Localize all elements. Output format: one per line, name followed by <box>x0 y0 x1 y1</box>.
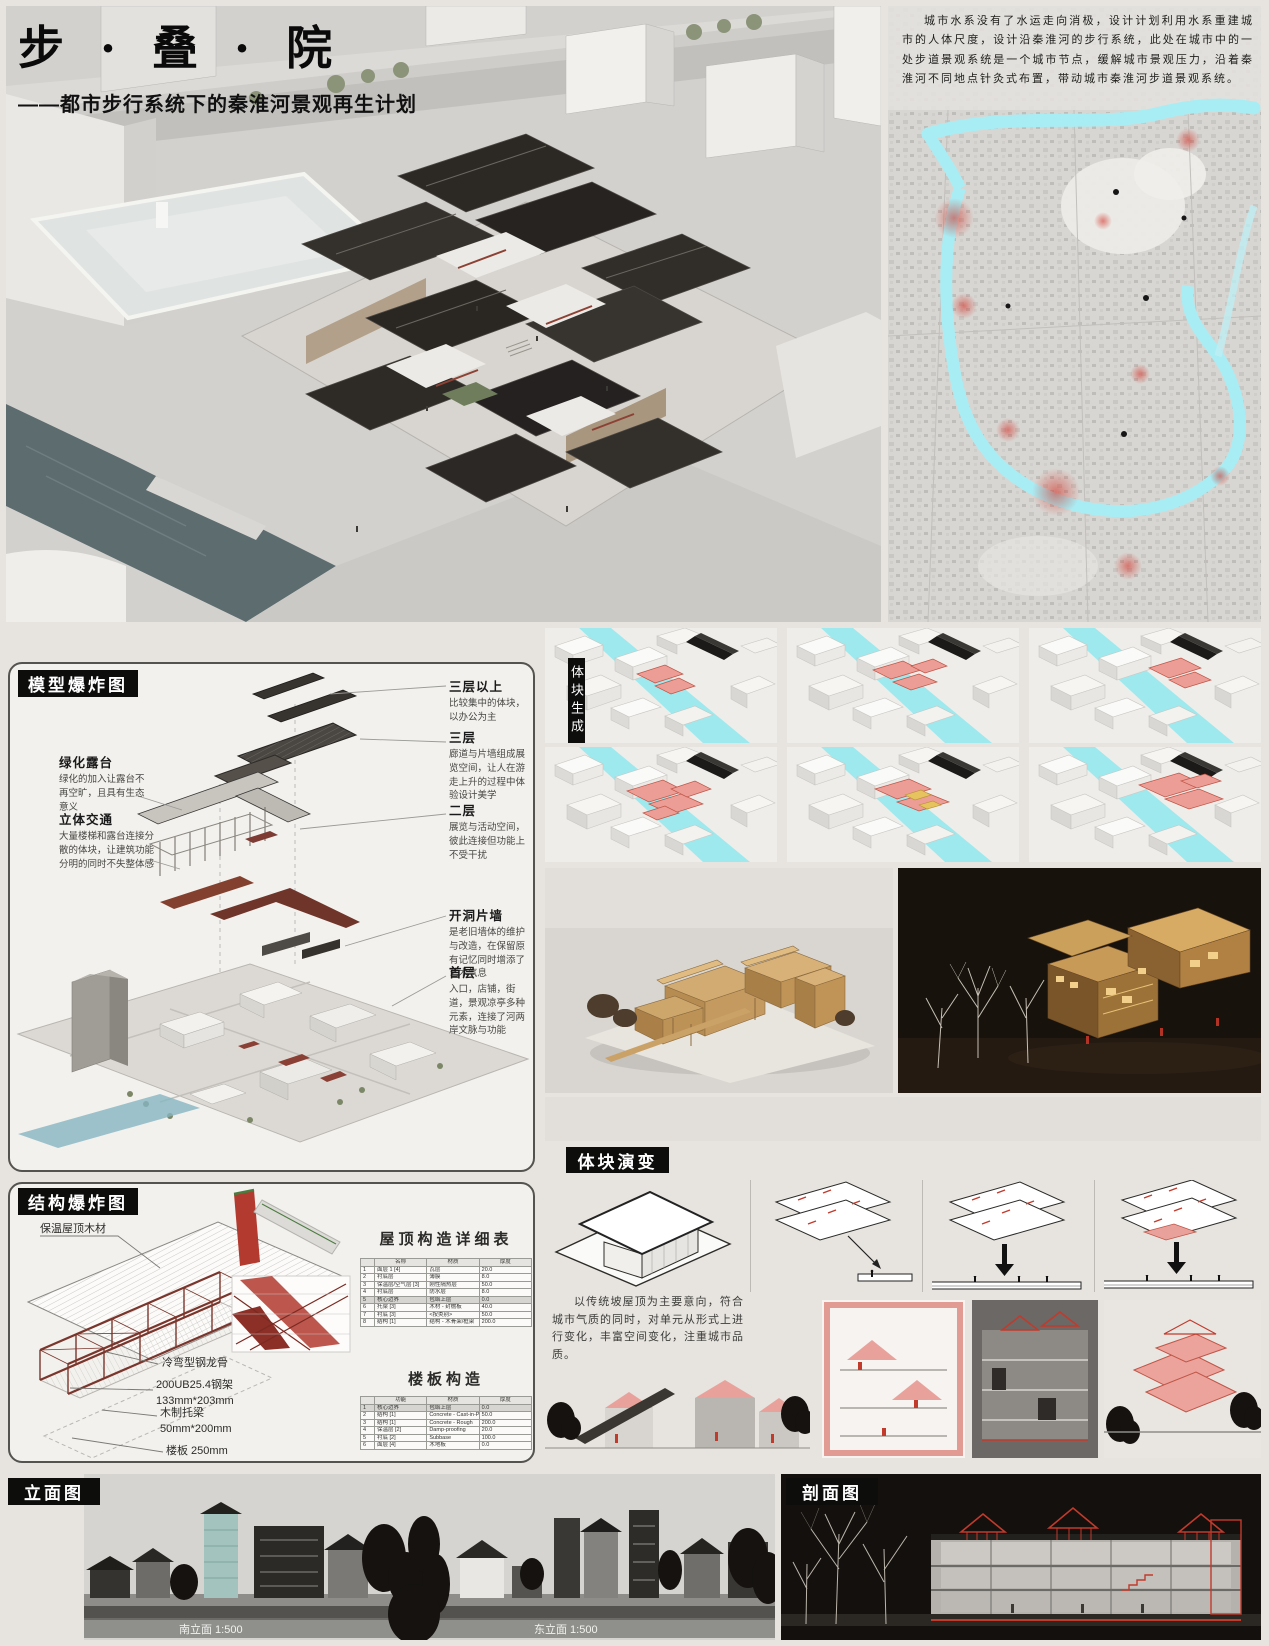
massing-tile-5 <box>787 747 1019 862</box>
evolution-divider-3 <box>1094 1180 1095 1292</box>
east-elevation-caption: 东立面 1:500 <box>534 1622 598 1636</box>
section-header-elevations: 立面图 <box>8 1478 100 1505</box>
site-intro-text: 城市水系没有了水运走向消极，设计计划利用水系重建城市的人体尺度，设计沿秦淮河的步… <box>902 12 1254 89</box>
photo-strip-margin <box>545 1097 1261 1141</box>
massing-tile-3 <box>1029 628 1261 743</box>
floor-construction-table: 功能 材质 厚度 1核心边界包络上层0.02结构 [1]Concrete - C… <box>360 1396 532 1450</box>
exploded-label-second-floor: 二层 展览与活动空间，彼此连接但功能上不受干扰 <box>449 800 531 862</box>
collage-image-4 <box>1104 1300 1261 1458</box>
massing-tile-6 <box>1029 747 1261 862</box>
structure-panel: 结构爆炸图 <box>8 1182 535 1463</box>
massing-tile-2 <box>787 628 1019 743</box>
massing-tile-4 <box>545 747 777 862</box>
structure-label-joist: 木制托梁 50mm*200mm <box>160 1406 270 1438</box>
presentation-board: 步 · 叠 · 院 ——都市步行系统下的秦淮河景观再生计划 城市水系没有了水 <box>0 0 1269 1646</box>
evolution-divider-2 <box>922 1180 923 1292</box>
exploded-model-panel: 模型爆炸图 <box>8 662 535 1172</box>
elevation-drawing: 南立面 1:500 东立面 1:500 <box>84 1474 775 1640</box>
structure-label-keel: 冷弯型钢龙骨 <box>162 1356 252 1372</box>
evolution-divider-1 <box>750 1180 751 1292</box>
massing-generation-label: 体块生成 <box>568 658 585 743</box>
evolution-step-3 <box>1104 1180 1254 1292</box>
evolution-house-diagram <box>552 1180 737 1288</box>
title-block: 步 · 叠 · 院 ——都市步行系统下的秦淮河景观再生计划 <box>18 12 578 117</box>
section-header-massing-evolution: 体块演变 <box>566 1147 669 1173</box>
south-elevation-caption: 南立面 1:500 <box>179 1622 243 1636</box>
exploded-label-third-floor: 三层 廊道与片墙组成展览空间，让人在游走上升的过程中体验设计美学 <box>449 727 531 803</box>
project-title: 步 · 叠 · 院 <box>18 12 578 78</box>
model-photo-dark <box>898 868 1261 1093</box>
project-subtitle: ——都市步行系统下的秦淮河景观再生计划 <box>18 88 578 117</box>
exploded-label-ground-floor: 首层 入口，店铺，街道，景观凉亭多种元素，连接了河两岸文脉与功能 <box>449 962 531 1038</box>
collage-image-1 <box>545 1368 810 1458</box>
section-header-section: 剖面图 <box>786 1478 878 1505</box>
evolution-note: 以传统坡屋顶为主要意向，符合城市气质的同时，对单元从形式上进行变化，丰富空间变化… <box>552 1294 744 1364</box>
roof-table-title: 屋顶构造详细表 <box>360 1228 532 1249</box>
structure-label-roof-wood: 保温屋顶木材 <box>40 1222 140 1238</box>
evolution-step-1 <box>760 1180 918 1292</box>
model-photo-light <box>545 868 893 1093</box>
evolution-step-2 <box>932 1180 1082 1292</box>
exploded-label-upper-floors: 三层以上 比较集中的体块，以办公为主 <box>449 676 531 725</box>
structure-label-slab: 楼板 250mm <box>166 1444 266 1460</box>
collage-image-2 <box>822 1300 965 1458</box>
roof-construction-table: 名称 材质 厚度 1面层 1 [4]瓦层20.02衬底层薄膜8.03保温层/空气… <box>360 1258 532 1327</box>
exploded-label-vertical-circulation: 立体交通 大量楼梯和露台连接分散的体块，让建筑功能分明的同时不失整体感 <box>59 809 163 871</box>
floor-table-title: 楼板构造 <box>360 1368 532 1389</box>
exploded-label-green-terrace: 绿化露台 绿化的加入让露台不再空旷，且具有生态意义 <box>59 752 151 814</box>
site-map <box>888 6 1261 622</box>
collage-image-3 <box>972 1300 1098 1458</box>
